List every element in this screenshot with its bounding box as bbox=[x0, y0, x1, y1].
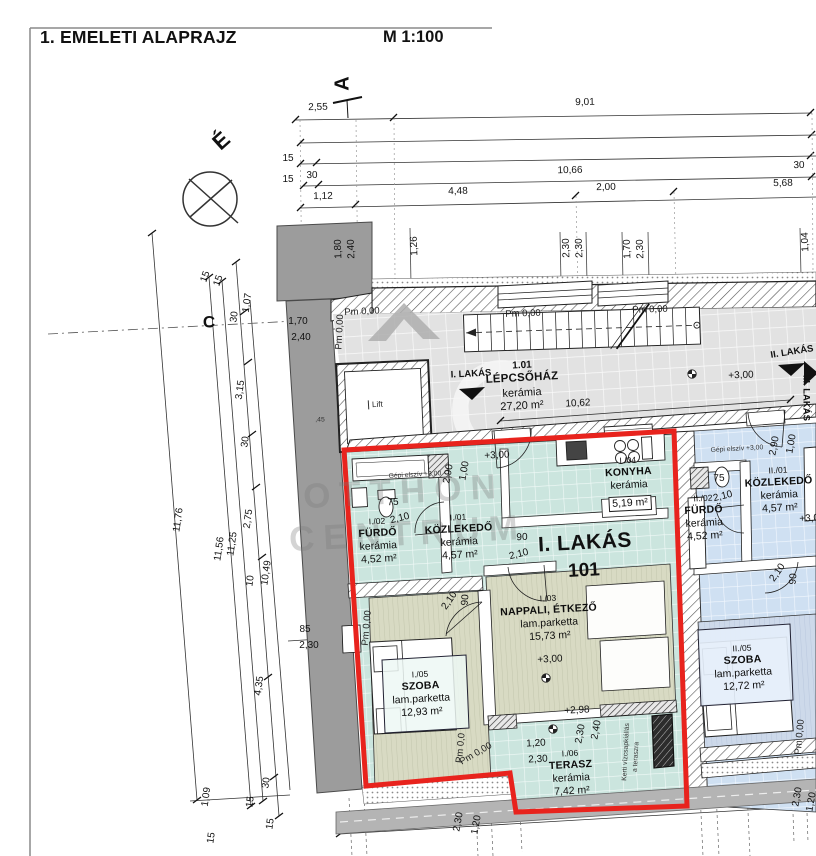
scale-label: M 1:100 bbox=[383, 28, 444, 47]
apartment2-entrance-door bbox=[746, 410, 785, 426]
apartment3-marker-label: III. LAKÁS bbox=[801, 375, 812, 421]
apartment1-title: I. LAKÁS bbox=[538, 529, 633, 558]
stairwell-window bbox=[498, 281, 668, 308]
apartment1-marker-label: I. LAKÁS bbox=[450, 367, 491, 380]
north-compass-icon bbox=[183, 172, 238, 226]
section-marker-label: A bbox=[332, 76, 355, 90]
stairwell-area: 27,20 m² bbox=[500, 399, 544, 413]
apartment1-number: 101 bbox=[568, 559, 601, 583]
floorplan-page: OTTHON CENTRUM 1. EMELETI ALAPRAJZ M 1:1… bbox=[0, 0, 816, 856]
terrace-fixture bbox=[652, 714, 674, 768]
section-a-line bbox=[333, 97, 362, 118]
szoba1-label-box bbox=[382, 655, 469, 733]
szoba2-label-box bbox=[698, 624, 793, 706]
floorplan-drawing bbox=[0, 0, 816, 856]
stairwell-id: 1.01 bbox=[512, 359, 532, 371]
stairwell-floor: kerámia bbox=[502, 386, 542, 400]
apartment2 bbox=[674, 410, 816, 812]
lift-label: Lift bbox=[368, 400, 383, 410]
page-title: 1. EMELETI ALAPRAJZ bbox=[40, 27, 237, 48]
konyha-area-box bbox=[602, 497, 657, 518]
